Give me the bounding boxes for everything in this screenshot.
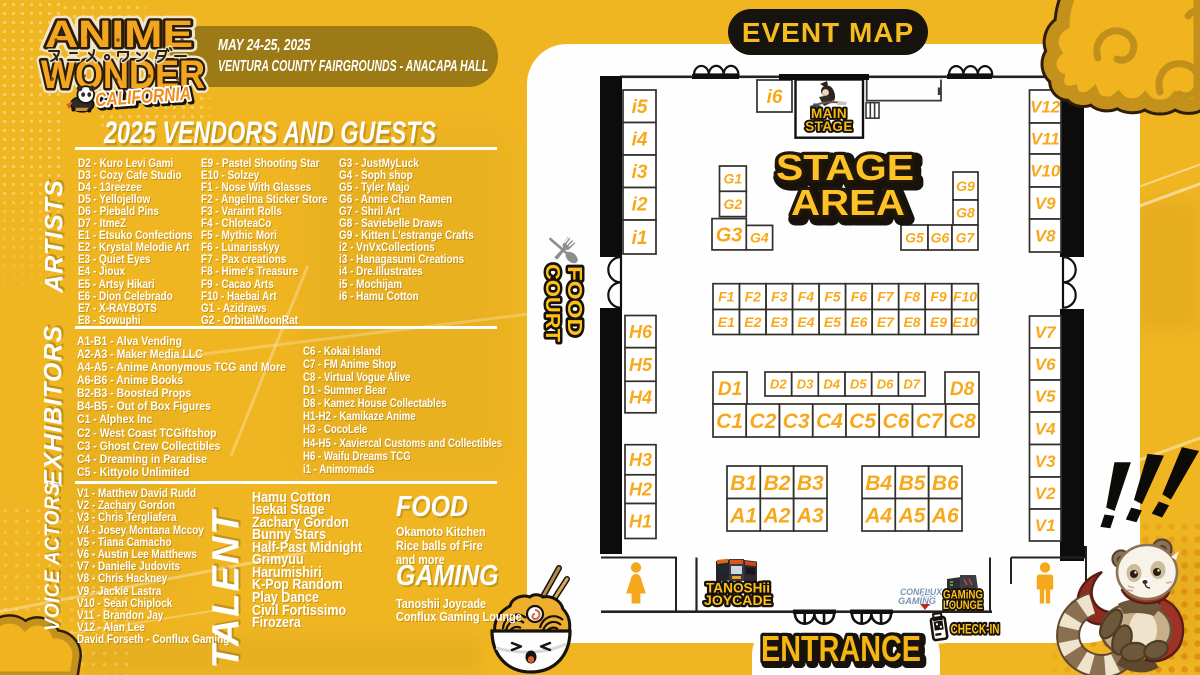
svg-text:E6: E6 [850,314,867,330]
svg-text:D1: D1 [718,379,742,400]
svg-text:D2: D2 [770,377,787,392]
svg-text:F7: F7 [877,289,895,305]
svg-text:F10: F10 [953,289,977,305]
svg-text:i5: i5 [632,97,648,118]
svg-text:C5: C5 [849,410,876,433]
svg-text:G7: G7 [956,230,976,246]
svg-text:B5: B5 [899,472,926,495]
svg-text:F8: F8 [904,289,921,305]
svg-text:V7: V7 [1035,323,1057,342]
svg-text:B3: B3 [797,472,824,495]
svg-text:A3: A3 [796,504,824,527]
svg-text:D7: D7 [903,377,920,392]
svg-text:V11: V11 [1031,130,1060,149]
svg-text:C8: C8 [949,410,976,433]
svg-text:D5: D5 [850,377,867,392]
svg-text:V1: V1 [1035,516,1056,535]
svg-text:G4: G4 [750,230,769,246]
svg-text:F9: F9 [930,289,947,305]
svg-text:C3: C3 [783,410,810,433]
svg-text:G3: G3 [716,224,743,246]
svg-text:B4: B4 [865,472,892,495]
svg-text:F3: F3 [771,289,788,305]
svg-text:F5: F5 [824,289,841,305]
svg-text:GAMING: GAMING [898,596,937,607]
svg-text:COURT: COURT [541,264,563,342]
svg-text:V12: V12 [1030,98,1061,117]
svg-text:ENTRANCE: ENTRANCE [761,628,921,669]
svg-text:F2: F2 [745,289,762,305]
svg-text:D4: D4 [823,377,840,392]
svg-text:A1: A1 [729,504,757,527]
svg-text:STAGE: STAGE [805,119,853,134]
svg-text:D6: D6 [877,377,894,392]
svg-text:B6: B6 [932,472,959,495]
svg-text:H6: H6 [629,322,653,342]
svg-text:C7: C7 [916,410,944,433]
svg-text:C1: C1 [716,410,743,433]
svg-text:E10: E10 [953,314,978,330]
svg-text:A4: A4 [864,504,892,527]
svg-text:G6: G6 [931,230,950,246]
svg-text:E9: E9 [930,314,947,330]
svg-text:i6: i6 [767,87,783,108]
svg-text:i4: i4 [632,130,648,151]
svg-text:C2: C2 [749,410,776,433]
svg-text:A2: A2 [763,504,791,527]
svg-text:H4: H4 [629,388,652,408]
svg-text:F4: F4 [798,289,815,305]
svg-text:H5: H5 [629,355,653,375]
svg-text:JOYCADE: JOYCADE [704,592,772,608]
svg-text:G1: G1 [724,171,743,187]
svg-text:G2: G2 [724,196,743,212]
svg-text:B1: B1 [730,472,757,495]
svg-text:E8: E8 [903,314,920,330]
svg-text:i2: i2 [632,195,648,216]
svg-text:H3: H3 [629,450,652,470]
svg-text:G5: G5 [905,230,924,246]
svg-text:V2: V2 [1035,484,1056,503]
svg-text:V6: V6 [1035,355,1056,374]
svg-text:G8: G8 [956,205,975,221]
svg-text:D8: D8 [950,379,975,400]
svg-text:F6: F6 [851,289,868,305]
svg-text:E2: E2 [744,314,761,330]
svg-text:F1: F1 [718,289,735,305]
svg-text:D3: D3 [797,377,814,392]
svg-text:FOOD: FOOD [563,266,585,336]
svg-text:V5: V5 [1035,387,1056,406]
svg-text:C4: C4 [816,410,843,433]
svg-text:E5: E5 [824,314,841,330]
svg-text:V9: V9 [1035,194,1056,213]
svg-text:AREA: AREA [791,182,905,223]
svg-text:V3: V3 [1035,452,1056,471]
svg-text:i1: i1 [632,228,648,249]
svg-text:i3: i3 [632,162,648,183]
svg-text:G9: G9 [956,178,975,194]
svg-text:E1: E1 [718,314,735,330]
svg-text:H1: H1 [629,512,652,532]
svg-text:A6: A6 [931,504,959,527]
svg-text:B2: B2 [764,472,791,495]
svg-text:V8: V8 [1035,227,1056,246]
svg-text:C6: C6 [882,410,909,433]
svg-text:LOUNGE: LOUNGE [943,598,983,612]
svg-text:V10: V10 [1030,162,1061,181]
svg-text:V4: V4 [1035,419,1056,438]
svg-text:E4: E4 [797,314,814,330]
svg-text:E7: E7 [877,314,895,330]
svg-text:H2: H2 [629,480,652,500]
svg-text:CHECK-IN: CHECK-IN [951,622,1000,637]
svg-text:A5: A5 [898,504,926,527]
svg-text:E3: E3 [771,314,788,330]
